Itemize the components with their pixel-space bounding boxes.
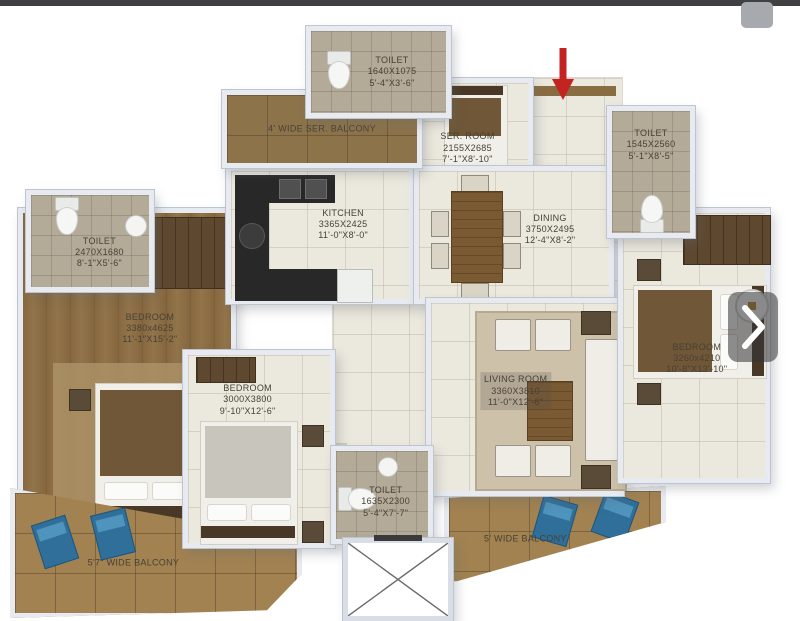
toilet-icon: [325, 51, 351, 89]
room-name: TOILET: [75, 236, 124, 247]
room-name: TOILET: [368, 55, 417, 66]
room-label: TOILET 2470X1680 8'-1"X5'-6": [75, 236, 124, 270]
room-size-ft: 11'-0"X12'-6": [484, 397, 547, 408]
dining-chair: [503, 243, 521, 269]
room-toilet-top: TOILET 1640X1075 5'-4"X3'-6": [306, 26, 451, 118]
room-label: BEDROOM 3380x4625 11'-1"X15'-2": [122, 312, 177, 346]
sink-icon: [378, 457, 398, 477]
room-label: SER. ROOM 2155X2685 7'-1"X8'-10": [440, 131, 494, 165]
bed-pillow: [104, 482, 148, 500]
room-name: BEDROOM: [220, 383, 276, 394]
room-label: BEDROOM 3000X3800 9'-10"X12'-6": [220, 383, 276, 417]
dining-table: [451, 191, 503, 283]
room-size-ft: 11'-1"X15'-2": [122, 335, 177, 346]
room-size-mm: 3260x4210: [666, 353, 727, 364]
room-size-ft: 5'-4"X3'-6": [368, 78, 417, 89]
bed-headboard: [447, 86, 503, 95]
armchair: [495, 445, 531, 477]
nightstand: [637, 259, 661, 281]
nightstand: [302, 521, 324, 543]
room-label: TOILET 1635X2300 5'-4"X7'-7": [361, 485, 410, 519]
room-living: LIVING ROOM 3360X3810 11'-0"X12'-6": [426, 298, 624, 496]
nightstand: [302, 425, 324, 447]
room-size-mm: 1640X1075: [368, 66, 417, 77]
room-size-mm: 3365X2425: [318, 219, 368, 230]
bed-headboard: [201, 526, 295, 538]
room-label: TOILET 1640X1075 5'-4"X3'-6": [368, 55, 417, 89]
room-name: TOILET: [627, 128, 676, 139]
next-arrow-button[interactable]: [728, 292, 778, 362]
room-size-mm: 1635X2300: [361, 496, 410, 507]
kitchen-sink: [305, 179, 327, 199]
room-toilet-bottom: TOILET 1635X2300 5'-4"X7'-7": [331, 446, 433, 544]
dining-chair: [431, 211, 449, 237]
room-kitchen: KITCHEN 3365X2425 11'-0"X8'-0": [226, 166, 414, 304]
room-label: LIVING ROOM 3360X3810 11'-0"X12'-6": [480, 372, 551, 410]
room-size-mm: 3000X3800: [220, 394, 276, 405]
dining-chair: [431, 243, 449, 269]
nightstand: [637, 383, 661, 405]
room-name: DINING: [525, 213, 575, 224]
nightstand: [69, 389, 91, 411]
sofa: [585, 339, 621, 461]
lounge-chair: [31, 515, 79, 570]
room-bedroom-mid: BEDROOM 3000X3800 9'-10"X12'-6": [183, 350, 335, 548]
room-name: 5' WIDE BALCONY: [484, 533, 567, 544]
room-label: KITCHEN 3365X2425 11'-0"X8'-0": [318, 208, 368, 242]
corridor-middle: [333, 296, 429, 448]
room-label: BEDROOM 3260x4210 10'-8"X13'-10": [666, 342, 727, 376]
room-size-ft: 7'-1"X8'-10": [440, 154, 494, 165]
side-table: [581, 311, 611, 335]
kitchen-sink: [279, 179, 301, 199]
bed-blanket: [449, 98, 501, 136]
balcony-label: 5' WIDE BALCONY: [484, 533, 567, 544]
room-size-ft: 9'-10"X12'-6": [220, 406, 276, 417]
dining-chair: [503, 211, 521, 237]
room-name: SER. ROOM: [440, 131, 494, 142]
toilet-icon: [640, 195, 666, 233]
room-size-mm: 3380x4625: [122, 323, 177, 334]
room-size-ft: 10'-8"X13'-10": [666, 364, 727, 375]
room-toilet-left: TOILET 2470X1680 8'-1"X5'-6": [26, 190, 154, 292]
room-label: TOILET 1545X2560 5'-1"X8'-5": [627, 128, 676, 162]
room-size-ft: 12'-4"X8'-2": [525, 236, 575, 247]
wardrobe: [196, 357, 256, 383]
balcony-right: 5' WIDE BALCONY: [444, 486, 666, 586]
bed-pillow: [251, 504, 291, 521]
stove-icon: [239, 223, 265, 249]
room-size-ft: 5'-4"X7'-7": [361, 508, 410, 519]
room-name: BEDROOM: [666, 342, 727, 353]
lounge-chair: [90, 507, 136, 560]
room-label: DINING 3750X2495 12'-4"X8'-2": [525, 213, 575, 247]
room-size-ft: 5'-1"X8'-5": [627, 151, 676, 162]
room-name: BEDROOM: [122, 312, 177, 323]
room-size-mm: 2155X2685: [440, 143, 494, 154]
room-dining: DINING 3750X2495 12'-4"X8'-2": [414, 166, 614, 304]
chevron-right-icon: [738, 301, 768, 353]
room-size-ft: 11'-0"X8'-0": [318, 230, 368, 241]
fridge: [337, 269, 373, 303]
bed-blanket: [205, 426, 291, 498]
lift-door: [374, 535, 422, 541]
toilet-icon: [53, 197, 79, 235]
room-name: 5'7" WIDE BALCONY: [88, 557, 180, 568]
wardrobe: [683, 215, 771, 265]
armchair: [535, 319, 571, 351]
top-scrollbar-track: [0, 0, 800, 6]
balcony-label: 5'7" WIDE BALCONY: [88, 557, 180, 568]
room-size-mm: 2470X1680: [75, 247, 124, 258]
room-name: 4' WIDE SER. BALCONY: [268, 123, 376, 134]
room-name: TOILET: [361, 485, 410, 496]
balcony-label: 4' WIDE SER. BALCONY: [268, 123, 376, 134]
sink-icon: [125, 215, 147, 237]
room-toilet-right: TOILET 1545X2560 5'-1"X8'-5": [607, 106, 695, 238]
side-table: [581, 465, 611, 489]
room-name: LIVING ROOM: [484, 374, 547, 385]
lift-cross-icon: [348, 543, 448, 616]
bed-pillow: [207, 504, 247, 521]
bed: [200, 421, 298, 545]
floorplan-image: BEDROOM 3380x4625 11'-1"X15'-2" 5'7" WID…: [0, 0, 800, 621]
room-name: KITCHEN: [318, 208, 368, 219]
kitchen-counter: [261, 269, 337, 301]
lift-shaft: [343, 538, 453, 621]
room-size-mm: 3360X3810: [484, 386, 547, 397]
scrollbar-thumb[interactable]: [741, 2, 773, 28]
room-size-mm: 1545X2560: [627, 140, 676, 151]
entry-arrow-icon: [551, 44, 575, 107]
armchair: [495, 319, 531, 351]
room-size-mm: 3750X2495: [525, 224, 575, 235]
armchair: [535, 445, 571, 477]
lounge-chair: [591, 490, 640, 544]
room-size-ft: 8'-1"X5'-6": [75, 259, 124, 270]
